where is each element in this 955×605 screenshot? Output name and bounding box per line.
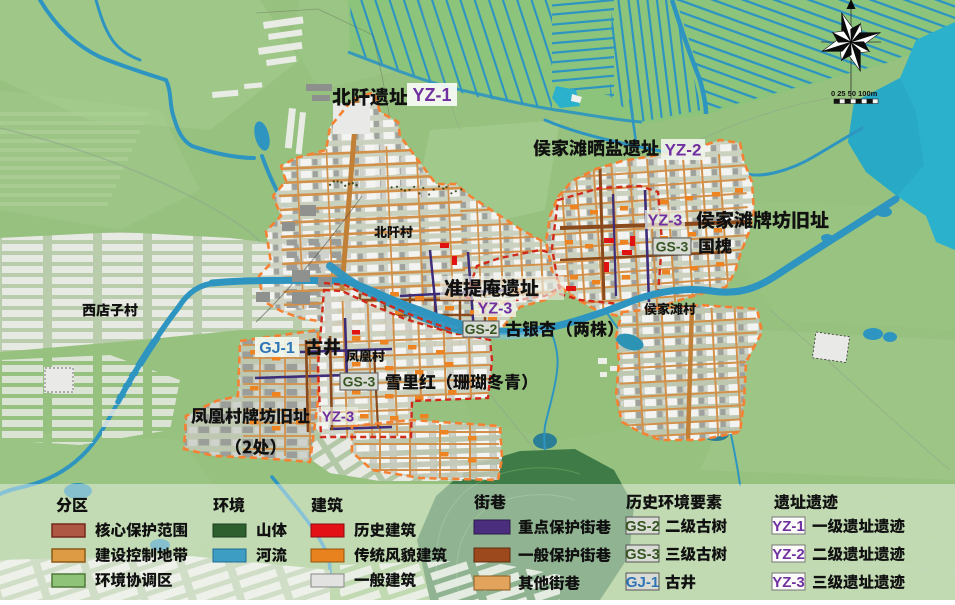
svg-text:GJ-1: GJ-1 <box>259 340 295 357</box>
svg-text:GS-3: GS-3 <box>343 374 376 390</box>
svg-text:GS-2: GS-2 <box>625 518 660 535</box>
svg-text:YZ-3: YZ-3 <box>648 212 683 229</box>
svg-text:GS-2: GS-2 <box>465 321 498 337</box>
svg-text:YZ-2: YZ-2 <box>772 546 805 563</box>
svg-text:0 25 50 100m: 0 25 50 100m <box>831 89 878 98</box>
svg-text:YZ-3: YZ-3 <box>478 300 513 317</box>
svg-text:GS-3: GS-3 <box>625 546 660 563</box>
svg-text:YZ-3: YZ-3 <box>772 574 805 591</box>
svg-text:YZ-1: YZ-1 <box>412 85 451 105</box>
svg-text:YZ-1: YZ-1 <box>772 518 805 535</box>
svg-text:YZ-3: YZ-3 <box>322 408 355 425</box>
svg-text:GJ-1: GJ-1 <box>626 574 659 591</box>
svg-text:YZ-2: YZ-2 <box>665 141 702 160</box>
svg-text:GS-3: GS-3 <box>656 239 689 255</box>
